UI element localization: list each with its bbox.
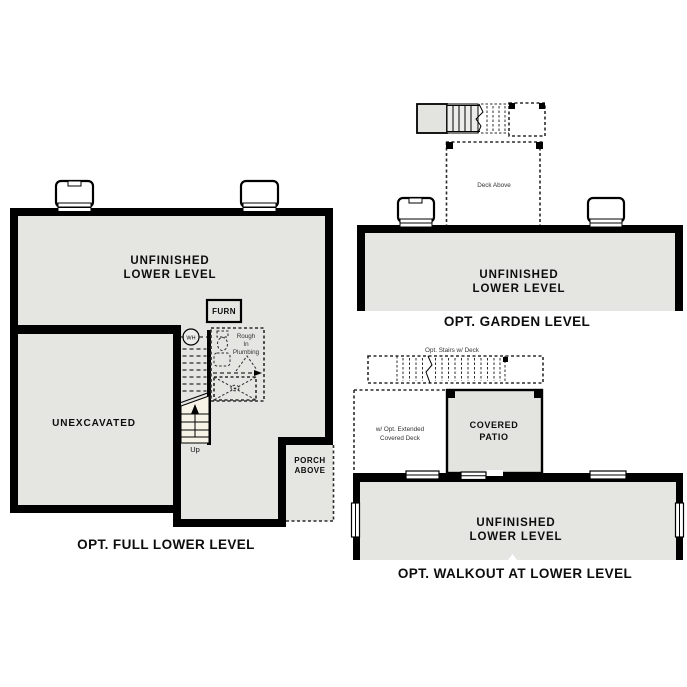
plan-walkout: Opt. Stairs w/ Deck (352, 347, 684, 581)
window-well (398, 198, 434, 227)
window (676, 503, 684, 537)
unfinished-label-line2: LOWER LEVEL (473, 283, 566, 295)
opt-stairs-label: Opt. Stairs w/ Deck (425, 347, 480, 354)
plan-title-garden: OPT. GARDEN LEVEL (444, 314, 590, 329)
unexcavated-label: UNEXCAVATED (52, 418, 136, 429)
window-well (56, 181, 93, 212)
opt-stairs-deck (368, 356, 543, 383)
stairs-up-label: Up (190, 445, 200, 454)
unfinished-label-line2: LOWER LEVEL (470, 531, 563, 543)
plan-title-walkout: OPT. WALKOUT AT LOWER LEVEL (398, 566, 632, 581)
garden-room (357, 225, 683, 311)
floorplan-sheet: FURN WH Up (0, 0, 687, 687)
plan-garden-level: Deck Above (357, 103, 683, 329)
divider-wall (10, 325, 181, 334)
unfinished-label-line1: UNFINISHED (130, 255, 209, 267)
rough-in-label-line3: Plumbing (233, 349, 260, 356)
rough-in-label-line1: Rough (237, 333, 256, 340)
window (461, 472, 486, 480)
window-well (241, 181, 278, 212)
ext-deck-label-line2: Covered Deck (380, 435, 421, 442)
water-heater-label: WH (186, 336, 195, 342)
porch-label-line2: ABOVE (295, 466, 326, 475)
porch-label-line1: PORCH (294, 456, 325, 465)
furnace-label: FURN (212, 307, 236, 316)
covered-patio-label-line2: PATIO (479, 432, 508, 442)
deck-stairs (417, 103, 545, 136)
walkout-room (353, 470, 683, 560)
plan-full-lower-level: FURN WH Up (10, 181, 334, 552)
covered-patio-label-line1: COVERED (470, 420, 519, 430)
unfinished-label-line1: UNFINISHED (479, 269, 558, 281)
window (590, 471, 626, 479)
window (352, 503, 360, 537)
plan-title-full-lower: OPT. FULL LOWER LEVEL (77, 537, 255, 552)
rough-in-label-line2: In (243, 341, 249, 348)
door-step (486, 470, 503, 476)
stair-landing (417, 104, 447, 133)
unfinished-label-line2: LOWER LEVEL (124, 269, 217, 281)
window (406, 471, 439, 479)
ext-deck-label-line1: w/ Opt. Extended (375, 426, 425, 433)
unfinished-label-line1: UNFINISHED (476, 517, 555, 529)
window-well (588, 198, 624, 227)
unexcavated-right-wall (173, 330, 181, 513)
floorplan-svg: FURN WH Up (0, 0, 687, 687)
deck-above-label: Deck Above (477, 182, 511, 189)
stair-break-line (426, 356, 432, 383)
